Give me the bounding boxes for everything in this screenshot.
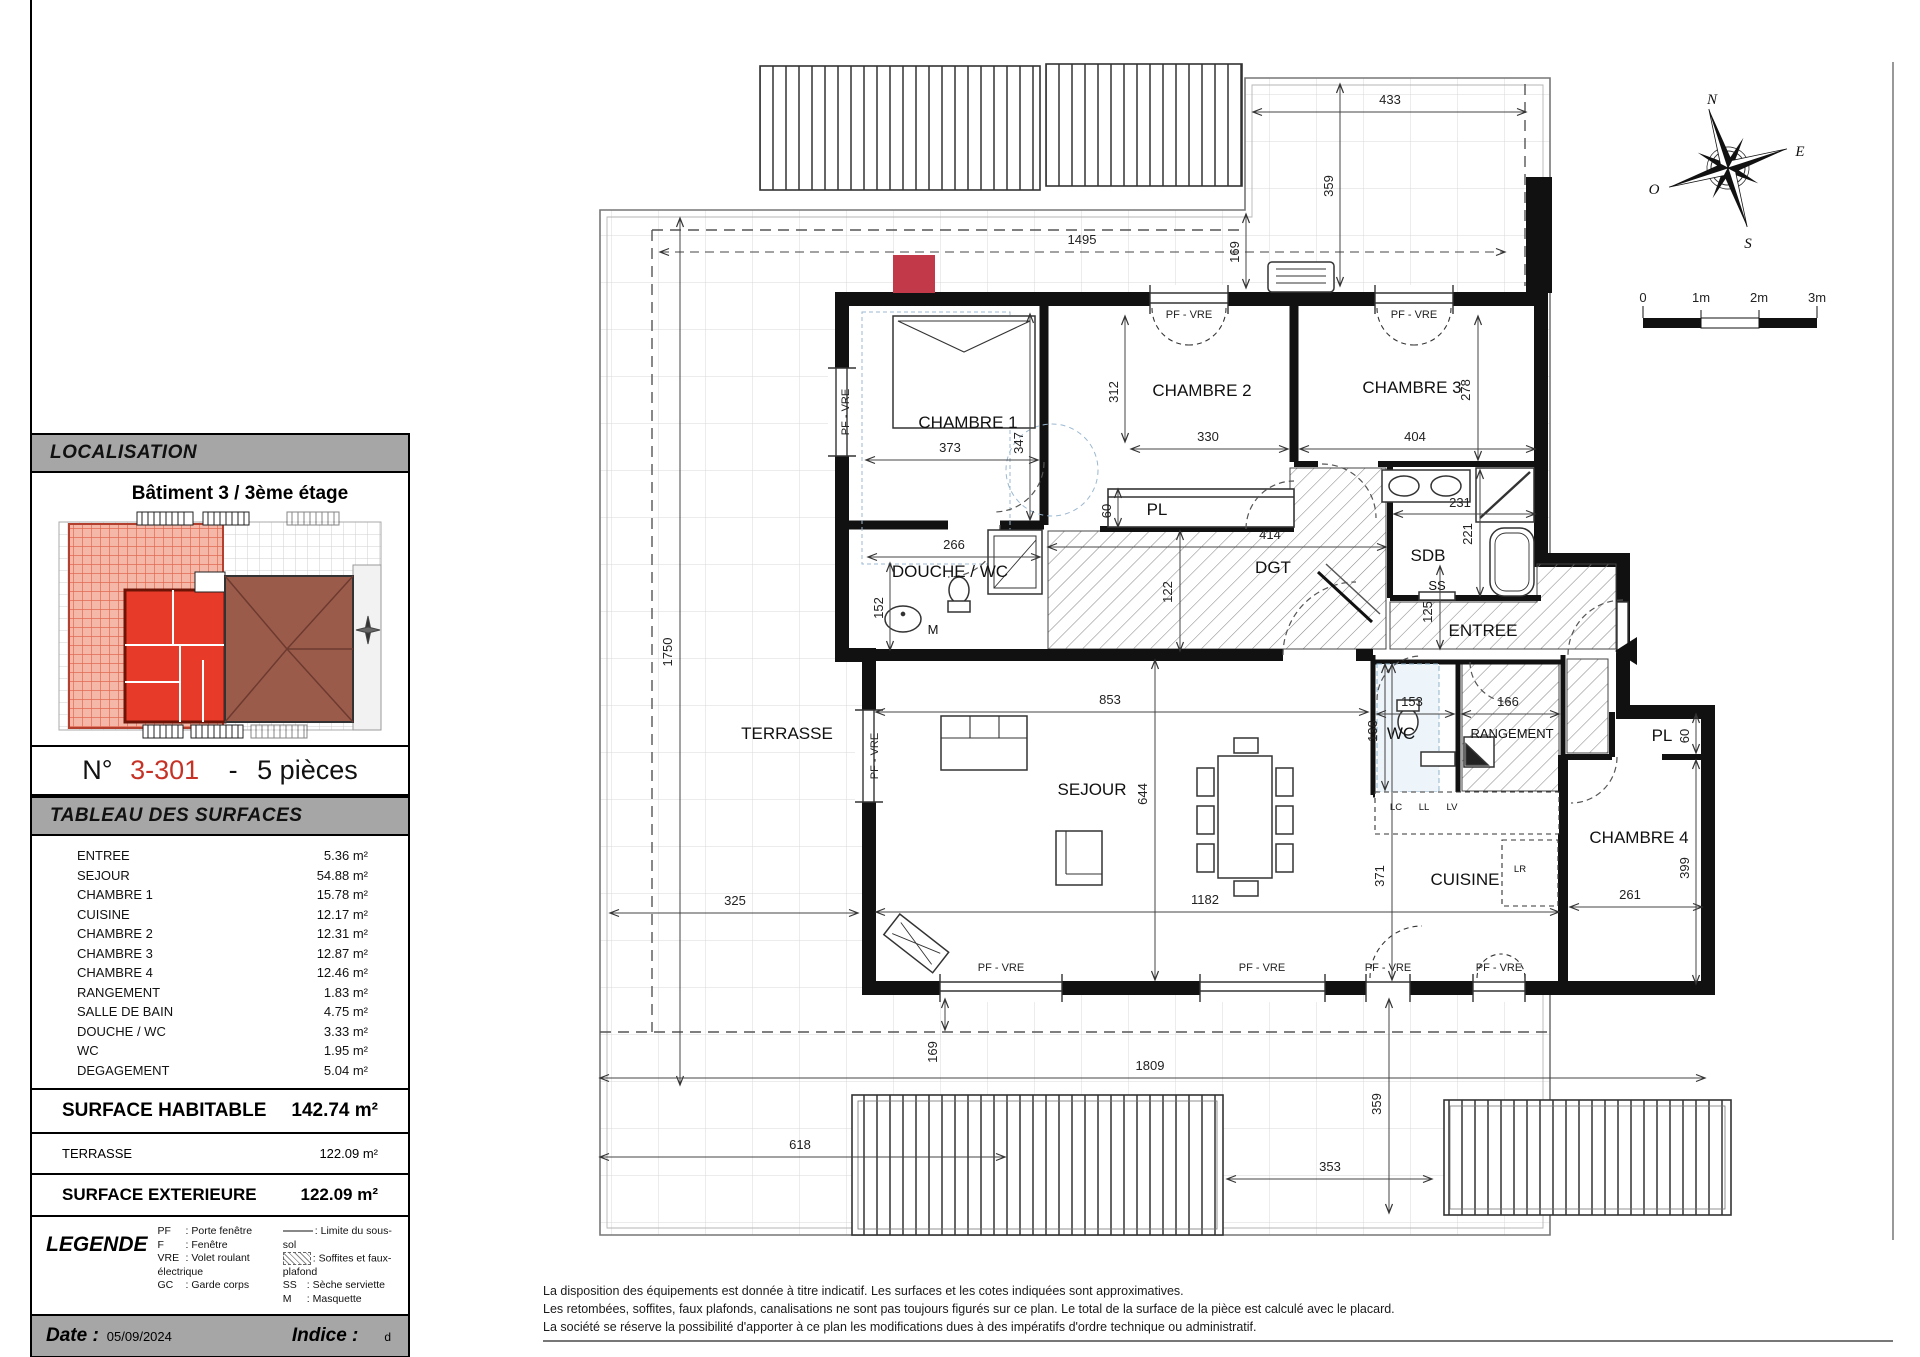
room-label-chambre3: CHAMBRE 3 bbox=[1362, 378, 1461, 397]
dim-644: 644 bbox=[1135, 783, 1150, 805]
label-seche-serviette: SS bbox=[1428, 578, 1446, 593]
compass-cardinal-points bbox=[1650, 90, 1806, 246]
room-label-wc: WC bbox=[1387, 724, 1415, 743]
dim-325: 325 bbox=[724, 893, 746, 908]
pergola-top bbox=[760, 64, 1242, 190]
dim-122: 122 bbox=[1160, 581, 1175, 603]
dim-359-bottom: 359 bbox=[1369, 1093, 1384, 1115]
room-label-terrasse: TERRASSE bbox=[741, 724, 833, 743]
dim-330: 330 bbox=[1197, 429, 1219, 444]
room-label-sejour: SEJOUR bbox=[1058, 780, 1127, 799]
armchair bbox=[1056, 831, 1102, 885]
toilet-douche bbox=[948, 577, 970, 612]
label-lv: LV bbox=[1447, 802, 1459, 813]
dim-60-pl: 60 bbox=[1099, 504, 1114, 518]
compass-o-label: O bbox=[1649, 182, 1660, 198]
pillar bbox=[1526, 177, 1552, 293]
seche-serviette bbox=[1419, 592, 1455, 600]
dim-1495: 1495 bbox=[1068, 232, 1097, 247]
dim-60-pl4: 60 bbox=[1677, 729, 1692, 743]
room-label-chambre2: CHAMBRE 2 bbox=[1152, 381, 1251, 400]
label-masquette: M bbox=[928, 622, 939, 637]
floor-plan-drawing: TERRASSE CHAMBRE 1 CHAMBRE 2 CHAMBRE 3 C… bbox=[0, 0, 1920, 1357]
room-label-rangement: RANGEMENT bbox=[1470, 726, 1553, 741]
dim-404: 404 bbox=[1404, 429, 1426, 444]
dim-153: 153 bbox=[1401, 694, 1423, 709]
sdb-bathtub bbox=[1490, 528, 1534, 596]
dim-618: 618 bbox=[789, 1137, 811, 1152]
window-label: PF - VRE bbox=[1476, 962, 1522, 974]
room-label-cuisine: CUISINE bbox=[1431, 870, 1500, 889]
ac-unit bbox=[1268, 262, 1334, 292]
room-label-entree: ENTREE bbox=[1449, 621, 1518, 640]
room-label-chambre1: CHAMBRE 1 bbox=[918, 413, 1017, 432]
dim-266: 266 bbox=[943, 537, 965, 552]
room-label-pl-ch4: PL bbox=[1652, 726, 1673, 745]
dim-353: 353 bbox=[1319, 1159, 1341, 1174]
scale-1m: 1m bbox=[1692, 290, 1710, 305]
dim-399: 399 bbox=[1677, 857, 1692, 879]
dim-1809: 1809 bbox=[1136, 1058, 1165, 1073]
masquette-marker bbox=[893, 255, 935, 293]
pergola-bottom-left bbox=[852, 1095, 1223, 1235]
room-label-chambre4: CHAMBRE 4 bbox=[1589, 828, 1688, 847]
window-label: PF - VRE bbox=[1239, 962, 1285, 974]
dim-221: 221 bbox=[1460, 523, 1475, 545]
dim-138: 138 bbox=[1365, 720, 1380, 742]
room-label-pl-top: PL bbox=[1147, 500, 1168, 519]
closet-pl-top bbox=[1108, 489, 1294, 527]
window-label: PF - VRE bbox=[978, 962, 1024, 974]
dim-414: 414 bbox=[1259, 527, 1281, 542]
window-label: PF - VRE bbox=[869, 733, 881, 779]
dim-231: 231 bbox=[1449, 495, 1471, 510]
dim-169-bottom: 169 bbox=[925, 1041, 940, 1063]
compass-rose: N E O S bbox=[1649, 90, 1807, 252]
room-label-douche-wc: DOUCHE / WC bbox=[892, 562, 1008, 581]
window-label: PF - VRE bbox=[1365, 962, 1411, 974]
window-label: PF - VRE bbox=[1391, 309, 1437, 321]
rangement-washer bbox=[1464, 737, 1494, 767]
sofa bbox=[941, 716, 1027, 770]
label-ll: LL bbox=[1419, 802, 1430, 813]
dim-853: 853 bbox=[1099, 692, 1121, 707]
scale-2m: 2m bbox=[1750, 290, 1768, 305]
scale-bar: 0 1m 2m 3m bbox=[1639, 290, 1826, 328]
window-label: PF - VRE bbox=[840, 389, 852, 435]
scale-0: 0 bbox=[1639, 290, 1646, 305]
dim-261: 261 bbox=[1619, 887, 1641, 902]
dim-166: 166 bbox=[1497, 694, 1519, 709]
dim-371: 371 bbox=[1372, 865, 1387, 887]
dim-125: 125 bbox=[1420, 601, 1435, 623]
compass-e-label: E bbox=[1794, 144, 1804, 160]
dim-1750: 1750 bbox=[660, 638, 675, 667]
dim-433: 433 bbox=[1379, 92, 1401, 107]
dim-1182: 1182 bbox=[1191, 892, 1219, 907]
window-label: PF - VRE bbox=[1166, 309, 1212, 321]
dim-312: 312 bbox=[1106, 381, 1121, 403]
label-lr: LR bbox=[1514, 864, 1526, 875]
dim-169-top: 169 bbox=[1227, 241, 1242, 263]
window-sejour-bottom-2 bbox=[1200, 974, 1325, 1002]
window-sejour-bottom-1 bbox=[940, 974, 1062, 1002]
compass-n-label: N bbox=[1706, 92, 1718, 108]
dim-359-top: 359 bbox=[1321, 175, 1336, 197]
room-label-dgt: DGT bbox=[1255, 558, 1291, 577]
wc-washbasin bbox=[1421, 752, 1455, 766]
dim-278: 278 bbox=[1458, 379, 1473, 401]
dim-373: 373 bbox=[939, 440, 961, 455]
scale-3m: 3m bbox=[1808, 290, 1826, 305]
room-label-sdb: SDB bbox=[1411, 546, 1446, 565]
pergola-bottom-right bbox=[1444, 1100, 1731, 1215]
compass-s-label: S bbox=[1744, 236, 1752, 252]
bed-chambre1 bbox=[893, 316, 1035, 428]
dim-347: 347 bbox=[1011, 432, 1026, 454]
dim-152: 152 bbox=[871, 597, 886, 619]
floor-plan-sheet: LOCALISATION Bâtiment 3 / 3ème étage bbox=[0, 0, 1920, 1357]
